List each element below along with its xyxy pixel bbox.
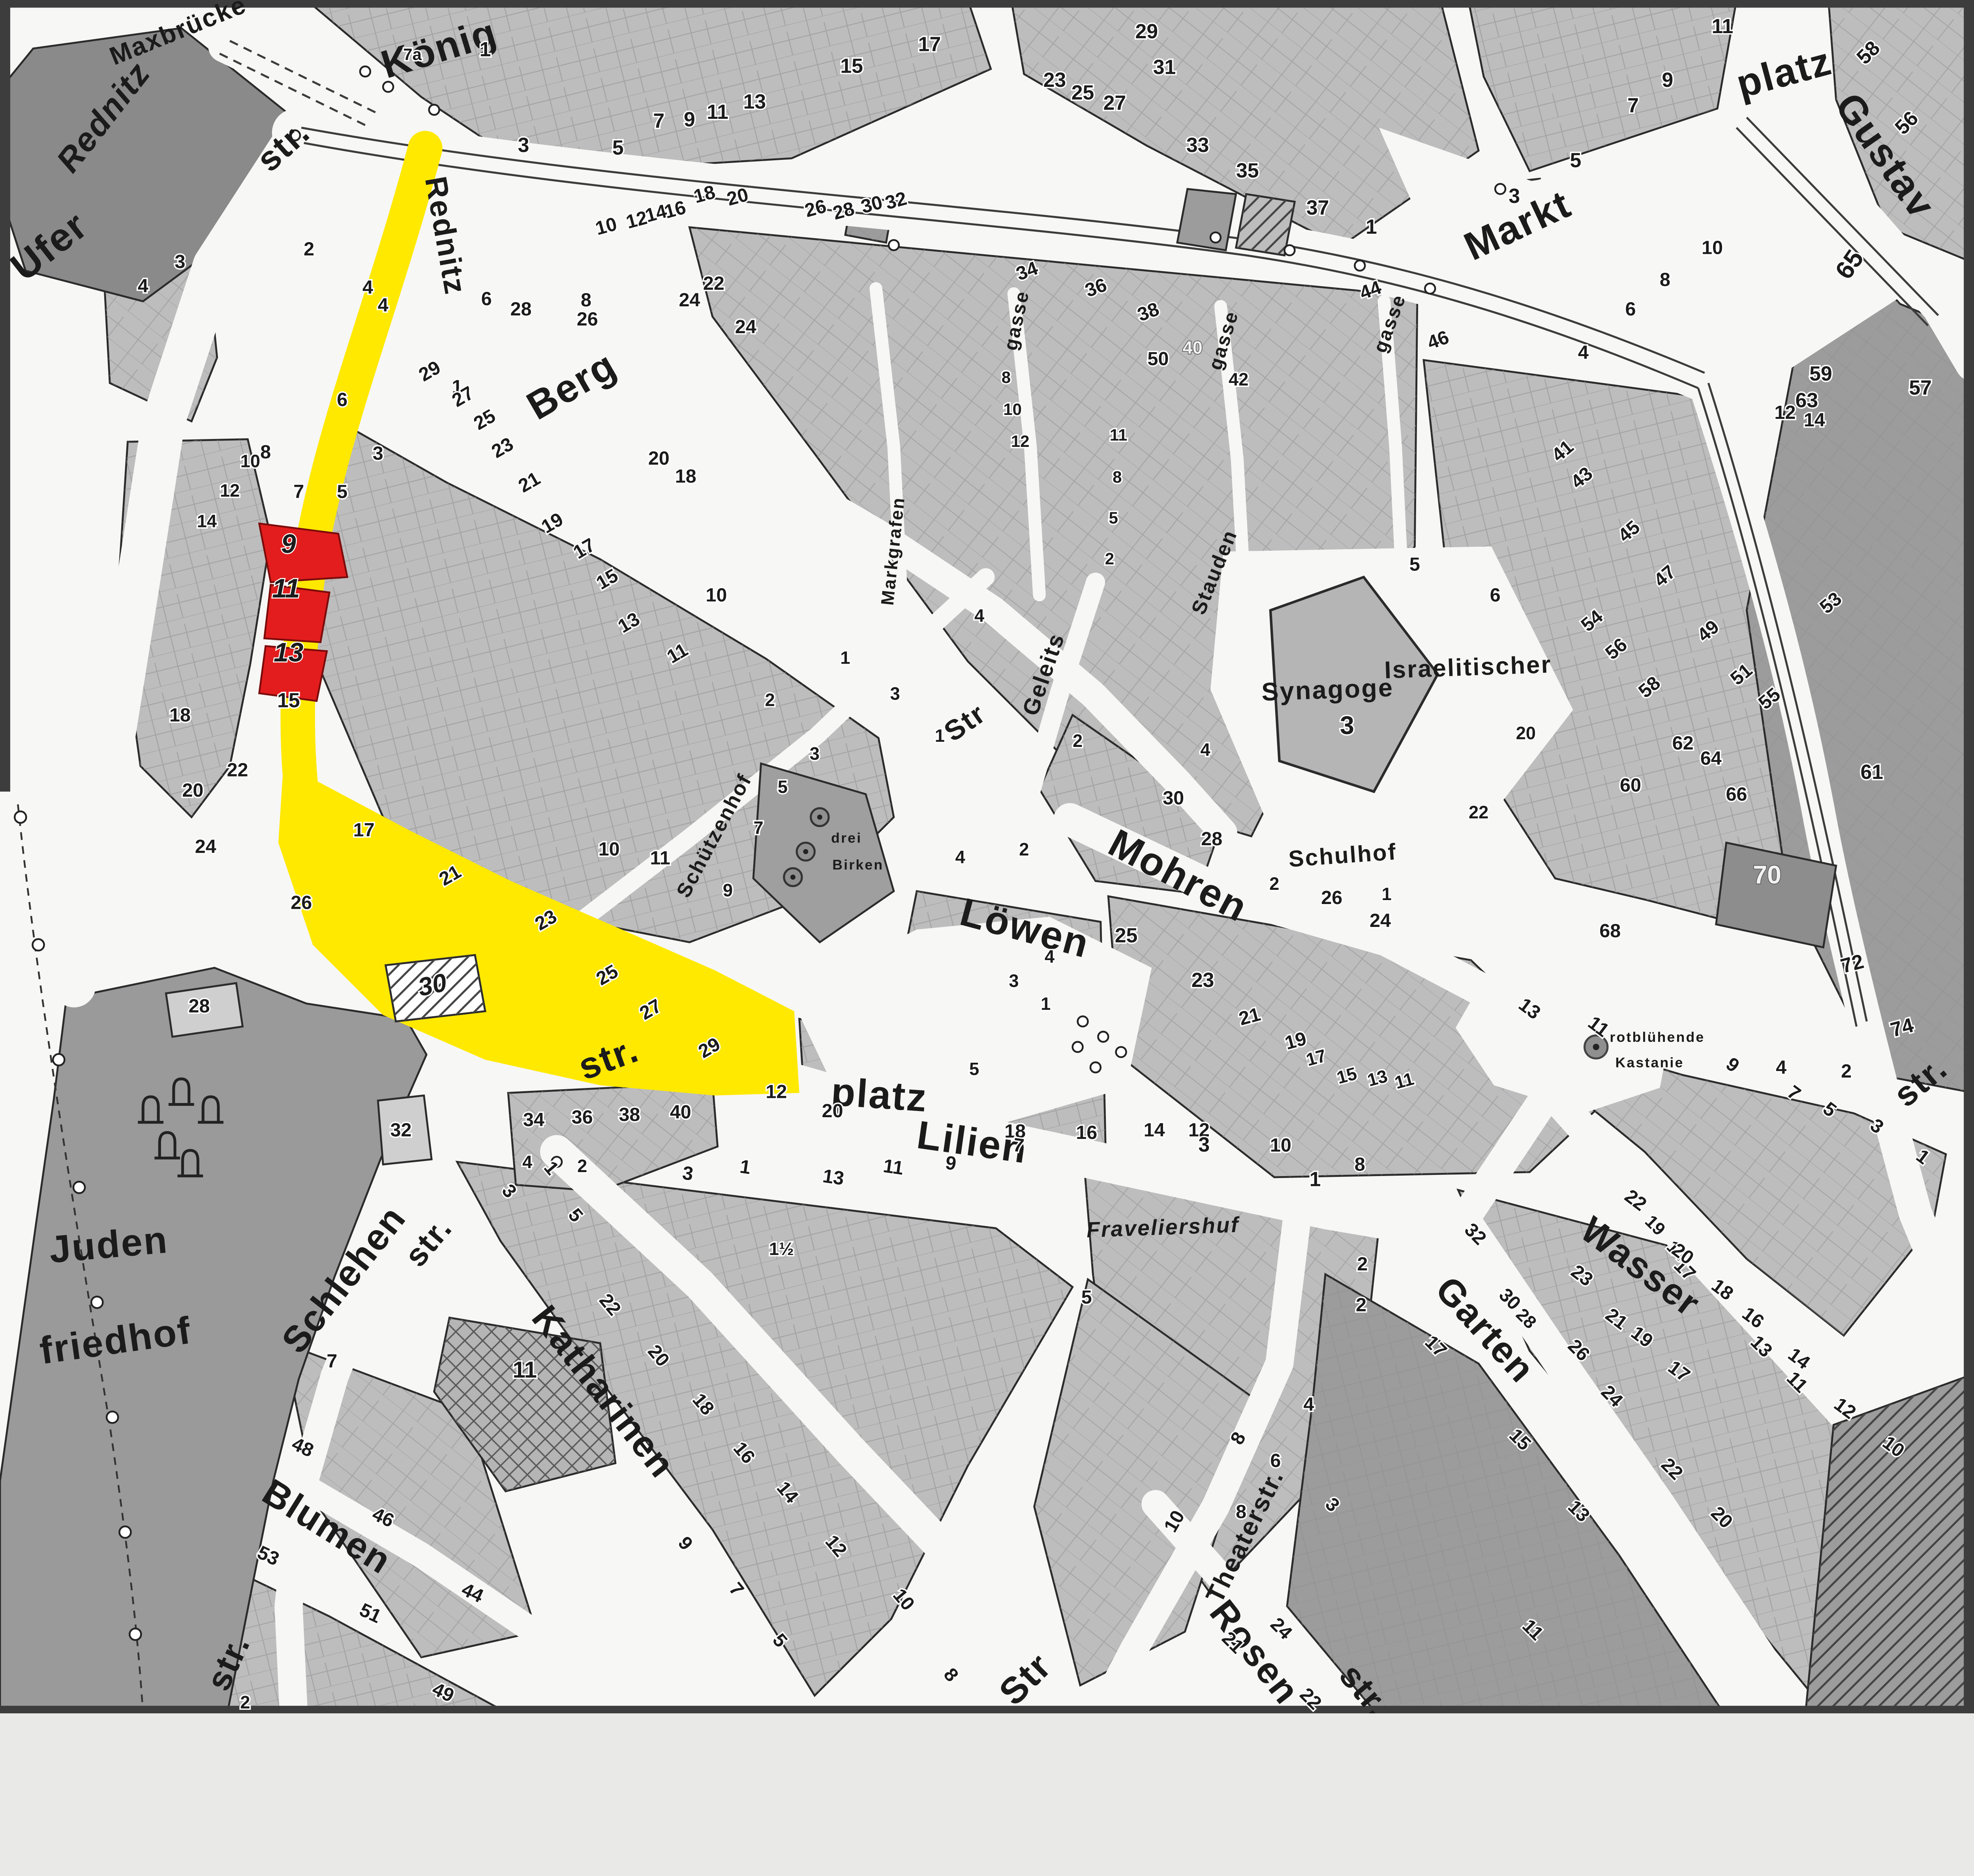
building-number: 18 <box>169 704 191 726</box>
tree-marker <box>1078 1016 1088 1026</box>
building-number: 14 <box>197 511 217 531</box>
building-number: 2 <box>304 238 314 260</box>
boundary-marker <box>73 1182 85 1193</box>
street-label-platz: platz <box>1732 39 1836 106</box>
boundary-marker <box>15 811 26 823</box>
building-number: 2 <box>1073 731 1083 751</box>
building-number: 8 <box>1236 1501 1246 1522</box>
building-number: 11 <box>272 574 300 604</box>
building-number: 62 <box>1672 732 1694 754</box>
building-number: 29 <box>415 356 445 386</box>
building-number: 28 <box>510 298 532 320</box>
chestnut-tree-icon-center <box>1593 1044 1599 1050</box>
scan-border <box>0 0 1974 8</box>
building-number: 9 <box>723 880 733 900</box>
building-number: 11 <box>650 848 670 869</box>
building-number: 26 <box>291 892 312 914</box>
building-number: 18 <box>675 466 696 487</box>
building-number: 4 <box>1045 947 1055 967</box>
building-number: 3 <box>890 683 900 703</box>
building-number: 35 <box>1236 159 1259 182</box>
building-number: 2 <box>1356 1294 1366 1315</box>
building-number: 3 <box>175 251 186 272</box>
building-number: 23 <box>1192 968 1214 991</box>
building-number: 1 <box>935 726 945 746</box>
building-number: 2 <box>1269 874 1279 894</box>
building-number: 16 <box>1076 1122 1097 1143</box>
building-number: 4 <box>1200 740 1210 760</box>
tree-icon-center <box>790 874 796 880</box>
building-number: 3 <box>518 133 529 156</box>
building-number: 12 <box>766 1081 787 1102</box>
tree-marker <box>1116 1047 1126 1057</box>
building-number: 4 <box>1304 1394 1314 1415</box>
city-map: MaxbrückeRednitzKönigstr.UferRednitzBerg… <box>0 0 1974 1713</box>
street-label-rotbl-hende: rotblühende <box>1610 1029 1705 1045</box>
tree-marker <box>1098 1032 1108 1042</box>
boundary-marker <box>53 1054 64 1066</box>
building-number: 5 <box>1409 554 1420 575</box>
building-number: 20 <box>648 448 670 469</box>
boundary-marker <box>91 1296 103 1308</box>
building-number: 4 <box>1578 342 1589 363</box>
building-number: 8 <box>1355 1154 1365 1175</box>
tree-marker <box>1495 184 1505 194</box>
building-number: 63 <box>1796 389 1818 412</box>
building-number: 5 <box>1570 149 1582 172</box>
building-number: 2 <box>577 1156 587 1176</box>
building-number: 9 <box>1662 68 1673 91</box>
building-number: 22 <box>1469 802 1488 822</box>
building-number: 20 <box>1516 723 1536 743</box>
building-number: 42 <box>1229 370 1248 390</box>
building-number: 40 <box>670 1101 691 1123</box>
building-number: 15 <box>840 54 863 77</box>
building-number: 5 <box>337 481 347 502</box>
tree-icon-center <box>803 849 808 854</box>
building-number: 8 <box>581 289 591 311</box>
building-number: 10 <box>706 584 727 606</box>
building-number: 28 <box>189 996 210 1017</box>
building-number: 11 <box>512 1357 537 1383</box>
building-number: 7 <box>753 818 763 838</box>
highlight-building-9 <box>259 523 347 582</box>
building-number: 12 <box>220 480 240 501</box>
building-number: 6 <box>337 389 347 410</box>
building-number: 7 <box>293 481 304 502</box>
building-number: 10 <box>1270 1135 1291 1156</box>
building-number: 1½ <box>769 1239 794 1259</box>
building-number: 51 <box>356 1599 385 1628</box>
building-number: 5 <box>969 1059 979 1079</box>
building-number: 11 <box>1110 426 1127 444</box>
building-number: 1 <box>480 38 491 60</box>
building-number: 2 <box>1841 1061 1852 1082</box>
boundary-marker <box>107 1411 118 1423</box>
building-number: 3 <box>810 743 820 764</box>
building-number: 8 <box>1660 269 1670 290</box>
building-number: 23 <box>488 433 517 462</box>
building-number: 13 <box>743 90 766 113</box>
building-number: 10 <box>240 451 260 471</box>
building-40-dark <box>1177 189 1236 250</box>
street-label-synagoge: Synagoge <box>1261 673 1394 706</box>
building-number: 8 <box>1002 368 1011 386</box>
building-number: 12 <box>1011 432 1030 450</box>
building-number: 29 <box>1135 20 1158 43</box>
building-number: 3 <box>1509 184 1520 207</box>
building-number: 9 <box>684 108 695 131</box>
street-label-platz: platz <box>830 1069 929 1120</box>
building-number: 8 <box>260 441 271 463</box>
building-number: 1 <box>739 1156 752 1178</box>
tree-marker <box>1425 283 1435 294</box>
building-number: 68 <box>1599 920 1621 942</box>
building-number: 61 <box>1860 760 1883 783</box>
building-number: 27 <box>1103 91 1126 114</box>
building-number: 60 <box>1620 775 1641 796</box>
building-number: 10 <box>1702 237 1723 259</box>
building-number: 4 <box>974 606 984 626</box>
building-number: 7a <box>403 45 422 64</box>
building-number: 6 <box>1490 584 1501 606</box>
boundary-marker <box>129 1628 141 1640</box>
building-number: 1 <box>1310 1168 1321 1191</box>
building-number: 11 <box>1712 15 1734 38</box>
building-number: 7 <box>326 1351 337 1372</box>
building-number: 13 <box>274 638 304 667</box>
boundary-marker <box>32 939 44 951</box>
building-number: 25 <box>470 405 499 434</box>
building-number: 1 <box>840 648 850 668</box>
building-number: 1 <box>1382 884 1392 904</box>
building-number: 11 <box>707 100 728 123</box>
building-number: 32 <box>390 1119 412 1141</box>
tree-marker <box>889 240 899 250</box>
building-number: 13 <box>821 1165 845 1189</box>
building-number: 2 <box>1105 549 1114 568</box>
building-number: 66 <box>1726 784 1747 805</box>
building-number: 9 <box>674 1533 697 1554</box>
street-label-drei: drei <box>831 830 862 846</box>
building-number: 64 <box>1700 748 1722 769</box>
building-number: 31 <box>1153 56 1176 79</box>
building-number: 20 <box>182 780 203 801</box>
map-svg: MaxbrückeRednitzKönigstr.UferRednitzBerg… <box>0 0 1974 1713</box>
building-number: 2 <box>765 690 775 710</box>
building-number: 3 <box>681 1162 694 1185</box>
boundary-marker <box>119 1526 131 1538</box>
building-number: 37 <box>1306 196 1329 219</box>
building-number: 59 <box>1809 362 1832 385</box>
building-number: 4 <box>1776 1057 1786 1078</box>
building-number: 17 <box>918 32 941 55</box>
scan-border <box>0 0 10 792</box>
tree-marker <box>360 66 370 77</box>
tree-marker <box>429 105 439 115</box>
tree-marker <box>1073 1042 1083 1052</box>
building-number: 22 <box>703 273 724 294</box>
building-number: 5 <box>1081 1287 1092 1308</box>
building-number: 7 <box>1627 94 1639 117</box>
street-label-rednitz: Rednitz <box>418 174 473 297</box>
tree-icon-center <box>817 814 822 820</box>
building-number: 10 <box>599 839 620 860</box>
building-number: 15 <box>277 689 300 712</box>
building-number: 20 <box>822 1100 843 1122</box>
building-number: 8 <box>1113 468 1122 486</box>
building-number: 14 <box>1804 409 1825 431</box>
building-number: 3 <box>1340 711 1354 740</box>
building-number: 1 <box>1041 994 1051 1014</box>
scan-border <box>0 1706 1974 1713</box>
building-number: 10 <box>1003 400 1022 418</box>
tree-marker <box>1210 233 1221 243</box>
building-number: 2 <box>240 1692 250 1712</box>
scan-border <box>1964 0 1974 1713</box>
building-number: 30 <box>415 968 449 1002</box>
building-number: 22 <box>227 759 248 780</box>
building-number: 5 <box>778 777 788 797</box>
building-number: 6 <box>1270 1450 1281 1471</box>
building-number: 2 <box>1019 839 1029 859</box>
building-number: 36 <box>572 1107 593 1128</box>
building-number: 46 <box>1424 326 1452 354</box>
building-number: 24 <box>679 289 700 311</box>
building-number: 3 <box>1198 1133 1210 1156</box>
building-number: 4 <box>138 276 148 297</box>
street-label-israelitischer: Israelitischer <box>1384 651 1552 684</box>
building-number: 6 <box>1625 298 1636 320</box>
building-number: 4 <box>522 1152 532 1172</box>
building-number: 2 <box>1357 1253 1368 1275</box>
building-number: 50 <box>1147 348 1169 370</box>
building-number: 4 <box>378 295 388 316</box>
tree-marker <box>1355 261 1365 271</box>
building-number: 34 <box>523 1109 544 1131</box>
building-number: 1 <box>1366 215 1377 238</box>
building-number: 17 <box>353 819 375 840</box>
building-number: 38 <box>619 1104 640 1126</box>
building-number: 23 <box>1043 68 1066 91</box>
building-number: 9 <box>281 529 296 559</box>
building-number: 21 <box>515 468 544 497</box>
building-number: 7 <box>653 109 664 132</box>
building-number: 5 <box>1109 508 1118 527</box>
building-number: 30 <box>1163 788 1184 809</box>
building-number: 11 <box>882 1155 905 1179</box>
building-number: 70 <box>1753 860 1781 889</box>
tree-marker <box>1285 245 1295 255</box>
building-number: 3 <box>1009 971 1019 991</box>
street-label-str: Str <box>938 698 991 748</box>
building-number: 25 <box>1115 924 1138 947</box>
building-number: 24 <box>195 836 216 857</box>
building-number: 28 <box>1201 828 1222 850</box>
building-number: 12 <box>1774 402 1796 423</box>
building-number: 3 <box>373 443 383 464</box>
building-number: 24 <box>1370 910 1391 931</box>
building-number: 10 <box>593 213 619 239</box>
building-number: 26 <box>577 309 598 330</box>
street-label-kastanie: Kastanie <box>1615 1055 1684 1071</box>
tree-marker <box>1090 1062 1101 1073</box>
building-number: 57 <box>1909 376 1932 399</box>
building-number: 6 <box>481 288 492 310</box>
building-number: 4 <box>362 277 373 298</box>
building-number: 14 <box>1144 1119 1165 1141</box>
building-number: 25 <box>1071 81 1094 104</box>
building-number: 4 <box>955 847 965 867</box>
building-number: 5 <box>612 136 624 159</box>
building-number: 8 <box>939 1664 963 1686</box>
building-number: 26 <box>1321 887 1342 908</box>
street-label-birken: Birken <box>832 857 884 872</box>
building-number: 40 <box>1183 338 1203 358</box>
building-number: 33 <box>1186 133 1209 156</box>
building-number: 24 <box>735 316 756 338</box>
